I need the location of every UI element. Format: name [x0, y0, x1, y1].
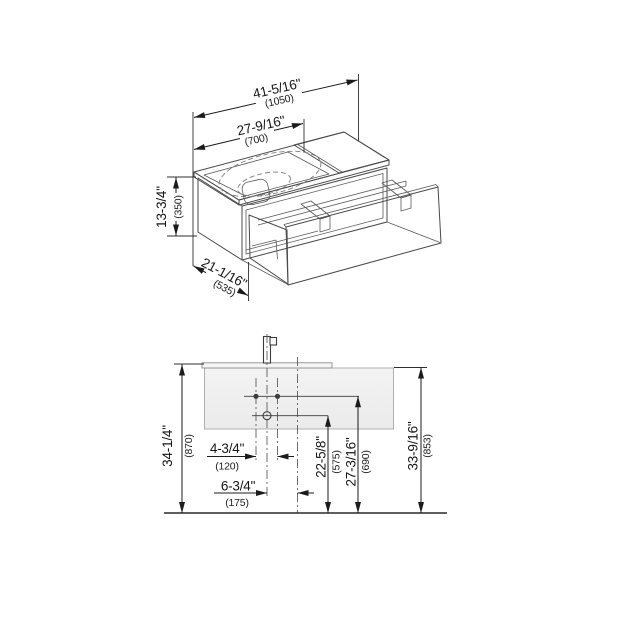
carcass-left-face: [198, 178, 242, 260]
drawer-divider-2-front: [401, 195, 411, 211]
iso-dimensions: 41-5/16" (1050) 27-9/16" (700) 13-3/4" (…: [154, 74, 359, 301]
drawer-divider-1-front: [320, 216, 330, 232]
dim-basin-width-line-left: [194, 139, 240, 150]
dim-body-height-mm-label: (350): [173, 195, 185, 219]
dim-depth-line-right: [240, 291, 248, 295]
dim-body-height-inches-label: 13-3/4": [154, 186, 169, 228]
dim-drain-height-mm-label: (575): [331, 450, 343, 474]
drawer-bottom-lines: [246, 231, 318, 259]
drawer-box-interior: [242, 180, 440, 285]
dim-top-edge-height-mm-label: (853): [422, 434, 434, 458]
technical-drawing-svg: 41-5/16" (1050) 27-9/16" (700) 13-3/4" (…: [0, 0, 628, 617]
dim-total-width-line-right: [302, 80, 358, 93]
dim-drain-offset-mm-label: (175): [225, 497, 249, 509]
drain-pipe-elbow: [270, 338, 277, 346]
iso-view: [194, 132, 441, 285]
drawer-pullout-rails: [242, 222, 440, 285]
dim-drain-height-inches-label: 22-5/8": [314, 436, 329, 478]
tap-hole-right: [275, 394, 280, 399]
dim-tap-spacing-mm-label: (120): [215, 461, 239, 473]
tap-hole-left: [253, 394, 258, 399]
dim-drain-offset-inches-label: 6-3/4": [221, 479, 256, 494]
cabinet-front-outline: [205, 368, 394, 429]
carcass-front-face: [242, 168, 387, 260]
drawer-panel-top-edge: [284, 185, 438, 228]
dim-total-height-mm-label: (870): [183, 434, 195, 458]
dim-top-edge-height-inches-label: 33-9/16": [406, 421, 421, 470]
drawing-sheet: 41-5/16" (1050) 27-9/16" (700) 13-3/4" (…: [0, 0, 628, 617]
drawer-aperture: [246, 174, 383, 255]
dim-tap-hole-height-mm-label: (690): [360, 450, 372, 474]
side-shelf-top-face: [294, 132, 389, 173]
dim-total-width-line-left: [194, 103, 256, 117]
dim-total-height-inches-label: 34-1/4": [160, 425, 175, 467]
drawer-back-wall-lines: [258, 181, 406, 225]
dim-tap-hole-height-inches-label: 27-3/16": [344, 437, 359, 486]
dim-tap-spacing-inches-label: 4-3/4": [210, 441, 245, 456]
countertop-front-edge: [239, 160, 389, 205]
